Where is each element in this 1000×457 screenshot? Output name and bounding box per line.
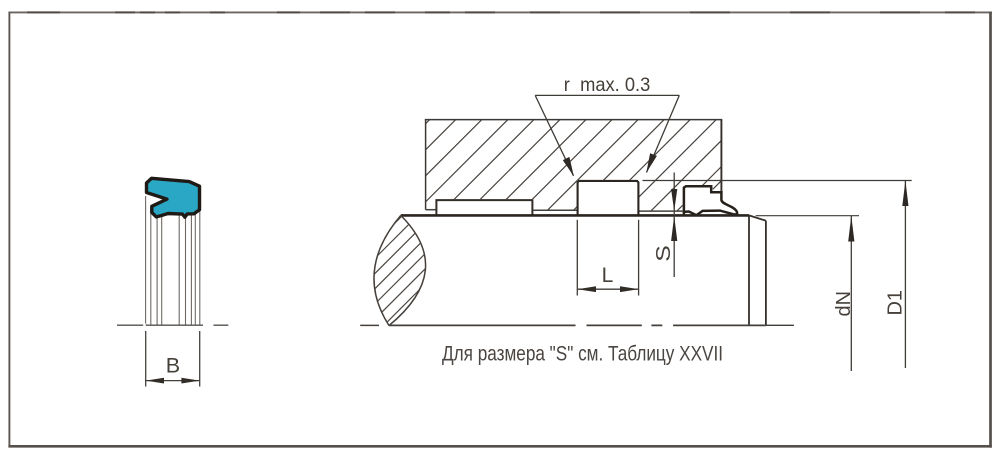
svg-text:B: B — [166, 353, 180, 377]
svg-text:r max. 0.3: r max. 0.3 — [564, 74, 651, 96]
svg-text:D1: D1 — [884, 290, 907, 316]
svg-text:dN: dN — [832, 291, 855, 317]
svg-text:S: S — [653, 245, 675, 262]
svg-text:L: L — [602, 264, 614, 287]
svg-text:Для размера "S" см. Таблицу XX: Для размера "S" см. Таблицу XXVII — [442, 341, 723, 365]
